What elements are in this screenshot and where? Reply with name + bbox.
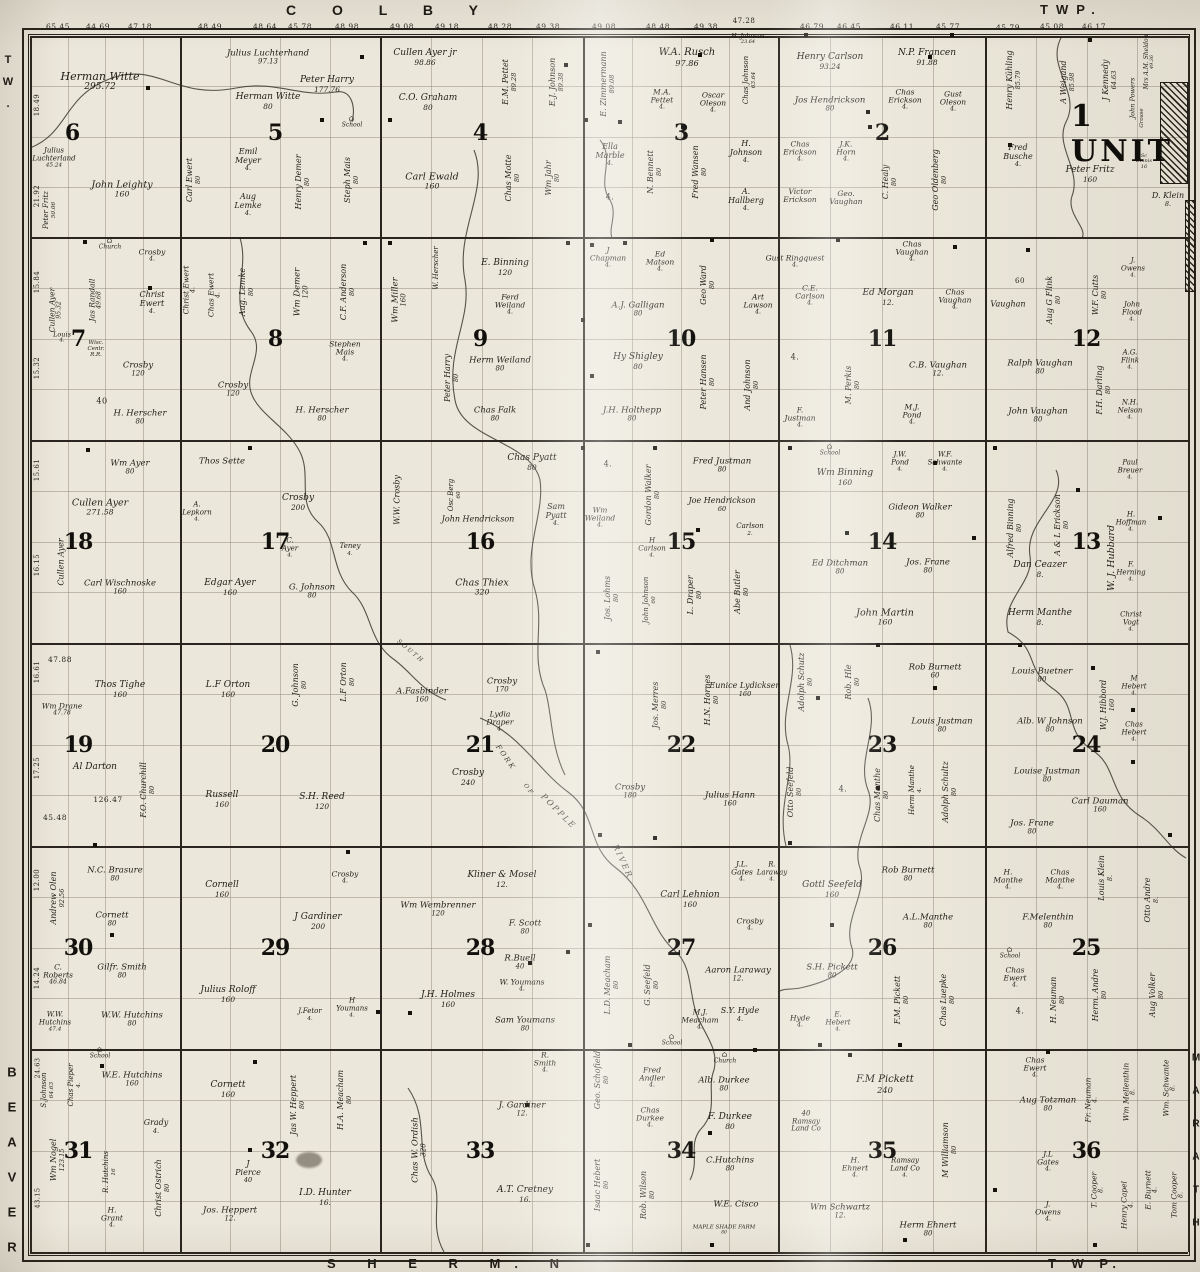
- parcel-label: Carl Dauman160: [1071, 798, 1128, 815]
- building-marker: [950, 33, 954, 37]
- parcel-label: Wm Binning160: [817, 469, 873, 487]
- parcel-label: Jos. Frane80: [906, 559, 950, 576]
- parcel-label: C.E.Carlson4.: [795, 285, 824, 308]
- parcel-label: Henry Carlson93.24: [797, 53, 864, 71]
- parcel-label: Wm Mellenthin8.: [1123, 1063, 1138, 1121]
- building-label: ⌂School: [820, 443, 840, 458]
- parcel-label: 12.00: [34, 869, 42, 892]
- parcel-label: Rob Burnett60: [909, 664, 962, 681]
- parcel-label: OscarOleson4.: [700, 92, 726, 115]
- building-marker: [83, 240, 87, 244]
- parcel-label: Cullen Ayer271.58: [72, 499, 128, 518]
- parcel-label: Jas W. Heppert80: [290, 1075, 306, 1135]
- parcel-label: E. Binning120: [481, 259, 529, 277]
- parcel-label: Wm Drane47.78: [42, 703, 83, 718]
- section-number: 16: [466, 529, 495, 555]
- parcel-label: R.Smith4.: [534, 1052, 557, 1075]
- east-letter: M: [1192, 1053, 1200, 1064]
- parcel-label: C.O. Graham80: [399, 94, 458, 112]
- section-number: 26: [868, 935, 897, 961]
- plat-map-page: C O L B Y TWP. S H E R M. N T W P. BEAVE…: [0, 0, 1200, 1272]
- east-letter: A: [1192, 1152, 1199, 1163]
- parcel-label: Herm. Andre80: [1092, 969, 1108, 1022]
- section-number: 12: [1072, 326, 1101, 352]
- parcel-label: C.Hutchins80: [706, 1157, 754, 1174]
- parcel-label: F. Durkee80: [708, 1113, 752, 1131]
- parcel-label: F.Justman4.: [784, 407, 815, 430]
- section-number: 9: [473, 326, 487, 352]
- parcel-label: L.F Orton80: [340, 662, 356, 702]
- building-marker: [248, 1148, 252, 1152]
- parcel-label: N.P. Francen91.88: [898, 49, 956, 67]
- parcel-label: Jas Randall49.68: [89, 279, 104, 322]
- parcel-label: 46.17: [1082, 23, 1106, 31]
- building-marker: [628, 1043, 632, 1047]
- parcel-label: H. Johnson23.64: [731, 34, 764, 46]
- parcel-label: A.T. Cretney16.: [497, 1186, 553, 1204]
- parcel-label: J.Owens4.: [1035, 1201, 1061, 1224]
- parcel-label: Chas Ewert4.: [208, 273, 223, 317]
- parcel-label: 16.61: [34, 661, 42, 684]
- parcel-label: C. Healy80: [882, 165, 898, 199]
- parcel-label: Wm. Schwante8.: [1163, 1060, 1178, 1117]
- section-number: 13: [1072, 529, 1101, 555]
- section-number: 29: [261, 935, 290, 961]
- section-number: 32: [261, 1138, 290, 1164]
- parcel-label: Herm Weiland80: [469, 357, 531, 374]
- parcel-label: Chas W. Ordish320: [412, 1117, 429, 1183]
- parcel-label: H. Herscher80: [113, 410, 166, 427]
- parcel-label: Gilfr. Smith80: [97, 964, 146, 981]
- parcel-label: ChasErickson4.: [888, 89, 921, 112]
- parcel-label: Aug G Flink80: [1046, 276, 1062, 324]
- parcel-label: J Kennedy64.63: [1102, 60, 1118, 101]
- parcel-label: J.H. Holthepp80: [603, 407, 661, 424]
- parcel-label: W. Youmans4.: [499, 979, 544, 994]
- parcel-label: H.Hoffman4.: [1116, 511, 1147, 532]
- parcel-label: M.J.Meacham4.: [681, 1009, 718, 1032]
- section-number: 22: [667, 732, 696, 758]
- parcel-label: J.Owens4.: [1121, 257, 1145, 278]
- parcel-label: ChasManthe4.: [1045, 869, 1074, 892]
- parcel-label: 15.32: [34, 357, 42, 380]
- building-label: ⌂Church: [714, 1051, 736, 1066]
- west-top-letter: W: [3, 76, 13, 88]
- parcel-label: Fred Justman80: [693, 458, 751, 475]
- parcel-label: N.C. Brasure80: [87, 867, 143, 884]
- parcel-label: F.Herning4.: [1116, 561, 1145, 582]
- parcel-label: 15.84: [34, 271, 42, 294]
- parcel-label: 40RamsayLand Co: [791, 1111, 821, 1134]
- building-marker: [623, 241, 627, 245]
- parcel-label: EllaMarble4.: [595, 143, 624, 167]
- parcel-label: 21.92: [34, 185, 42, 208]
- parcel-label: A.G.Flink4.: [1121, 349, 1139, 370]
- south-township-label: S H E R M. N: [220, 1256, 680, 1271]
- section-number: 33: [466, 1138, 495, 1164]
- parcel-label: N.H.Nelson4.: [1118, 399, 1143, 420]
- parcel-label: W.W. Crosby: [394, 475, 403, 525]
- parcel-label: Crosby240: [452, 769, 484, 787]
- parcel-label: HCarlson4.: [638, 537, 665, 558]
- parcel-label: Cornett160: [211, 1081, 246, 1099]
- building-marker: [598, 833, 602, 837]
- west-letter: B: [7, 1065, 16, 1080]
- parcel-label: Jos. Merres80: [652, 682, 668, 729]
- parcel-label: C.B. Vaughan12.: [909, 362, 967, 379]
- parcel-label: H. Herscher80: [295, 407, 348, 424]
- parcel-label: Jos. Frane80: [1010, 820, 1054, 837]
- parcel-label: Fr. Neuman4.: [1085, 1078, 1100, 1123]
- building-marker: [388, 118, 392, 122]
- building-marker: [1076, 488, 1080, 492]
- parcel-label: John Johnson60: [643, 577, 657, 624]
- parcel-label: Herm Manthe4.: [909, 765, 923, 815]
- parcel-label: Aaron Laraway12.: [705, 967, 771, 984]
- building-marker: [708, 1131, 712, 1135]
- parcel-label: Cornett80: [95, 912, 128, 929]
- parcel-label: Andrew Olen92.56: [50, 871, 66, 924]
- building-marker: [1168, 833, 1172, 837]
- parcel-label: J.Fetor4.: [298, 1008, 321, 1022]
- scan-smudge: [296, 1152, 322, 1168]
- building-marker: [253, 1060, 257, 1064]
- building-marker: [933, 686, 937, 690]
- parcel-label: 49.18: [435, 23, 459, 31]
- parcel-label: AugLemke4.: [234, 193, 261, 217]
- parcel-label: Russell160: [206, 791, 239, 809]
- building-marker: [408, 1011, 412, 1015]
- parcel-label: 49.08: [390, 23, 414, 31]
- building-label: ⌂School: [662, 1033, 682, 1048]
- parcel-label: Tom Cooper8.: [1171, 1172, 1186, 1218]
- parcel-label: 49.38: [694, 23, 718, 31]
- parcel-label: StephenMais4.: [329, 341, 361, 364]
- parcel-label: Thos Sette: [199, 457, 245, 466]
- parcel-label: 4.: [1016, 1008, 1025, 1017]
- west-letter: V: [8, 1170, 17, 1185]
- parcel-label: 48.28: [488, 23, 512, 31]
- parcel-label: Gottl Seefeld160: [802, 881, 862, 899]
- parcel-label: M Williamson80: [942, 1122, 958, 1177]
- parcel-label: A & L Erickson80: [1054, 494, 1070, 555]
- parcel-label: ChasErickson4.: [783, 141, 816, 164]
- parcel-label: Louis4.: [53, 332, 71, 345]
- parcel-label: W.E. Hutchins160: [102, 1072, 163, 1089]
- parcel-label: Sam Youmans80: [495, 1017, 555, 1034]
- building-marker: [972, 536, 976, 540]
- parcel-label: WmWeiland4.: [585, 507, 615, 530]
- parcel-label: 46.11: [890, 23, 914, 31]
- building-marker: [100, 1064, 104, 1068]
- building-marker: [818, 1043, 822, 1047]
- parcel-label: S.H. Pickett80: [806, 964, 857, 981]
- parcel-label: Cullen Ayer95.32: [49, 288, 64, 332]
- river-path: [778, 698, 871, 992]
- parcel-label: Chas Pieper4.: [68, 1064, 82, 1107]
- parcel-label: H. Neuman80: [1050, 977, 1066, 1023]
- parcel-label: 65.45: [46, 23, 70, 31]
- building-label: ⌂School: [342, 115, 362, 130]
- parcel-label: Thos Tighe160: [95, 681, 145, 699]
- building-marker: [876, 643, 880, 647]
- parcel-label: Louis Klein8.: [1098, 855, 1114, 900]
- parcel-label: Louis Justman80: [911, 718, 972, 735]
- building-marker: [581, 318, 585, 322]
- parcel-label: S.Johnson64.63: [41, 1072, 55, 1107]
- parcel-label: Ed Morgan12.: [862, 289, 913, 307]
- section-number: 27: [667, 935, 696, 961]
- building-marker: [836, 238, 840, 242]
- section-number: 31: [64, 1138, 93, 1164]
- parcel-label: 15.61: [34, 459, 42, 482]
- parcel-label: Ed Ditchman80: [812, 560, 868, 577]
- section-one-unit-stamp: 1 UNIT: [1071, 99, 1173, 169]
- parcel-label: W.F. Cutts80: [1092, 275, 1108, 316]
- section-number: 25: [1072, 935, 1101, 961]
- building-marker: [86, 448, 90, 452]
- parcel-label: Geo Ward80: [700, 265, 716, 305]
- building-marker: [346, 850, 350, 854]
- east-letter: T: [1193, 1185, 1199, 1196]
- parcel-label: Hyde4.: [790, 1015, 810, 1030]
- parcel-label: 49.38: [536, 23, 560, 31]
- section-number: 34: [667, 1138, 696, 1164]
- west-letter: E: [8, 1205, 17, 1220]
- parcel-label: Gideon Walker80: [888, 504, 951, 521]
- parcel-label: Herman Witte80: [236, 93, 301, 111]
- parcel-label: 4.: [791, 354, 800, 363]
- grid-line: [30, 237, 1188, 239]
- parcel-label: J Gardiner200: [294, 913, 341, 931]
- parcel-label: M. Perkis80: [845, 366, 861, 404]
- parcel-label: Geo Oldenberg80: [932, 149, 948, 210]
- parcel-label: E.M. Pettet89.28: [502, 59, 518, 105]
- section-number: 2: [875, 120, 889, 146]
- parcel-label: 45.79: [996, 24, 1020, 32]
- parcel-label: 43.15: [34, 1187, 41, 1208]
- parcel-label: J.K.Horn4.: [836, 141, 855, 164]
- parcel-label: Henry Capel4.: [1121, 1181, 1136, 1229]
- parcel-label: Fred Wansen80: [692, 145, 708, 198]
- parcel-label: Geo. Schofield80: [594, 1051, 610, 1110]
- parcel-label: H.Grant4.: [101, 1207, 123, 1230]
- west-letter: R: [7, 1240, 16, 1255]
- parcel-label: 60: [1015, 278, 1025, 286]
- parcel-label: 14.24: [34, 967, 42, 990]
- section-number: 28: [466, 935, 495, 961]
- parcel-label: ChasEwert4.: [1004, 967, 1027, 990]
- east-letter: R: [1192, 1119, 1199, 1130]
- parcel-label: ArtLawson4.: [743, 294, 772, 317]
- parcel-label: Gust Ringquest4.: [766, 255, 825, 270]
- parcel-label: Aug. Lemke80: [239, 268, 255, 316]
- parcel-label: E.Hebert4.: [825, 1011, 850, 1032]
- parcel-label: Carl Lehnion160: [660, 891, 719, 909]
- parcel-label: 48.49: [198, 23, 222, 31]
- parcel-label: G. Johnson80: [292, 663, 308, 707]
- parcel-label: Crosby120: [123, 362, 153, 379]
- parcel-label: ChasDurkee4.: [636, 1107, 664, 1130]
- parcel-label: 46.79: [800, 23, 824, 31]
- building-marker: [788, 841, 792, 845]
- parcel-label: N. Bennett80: [647, 150, 663, 194]
- parcel-label: Wm Ayer80: [110, 460, 149, 477]
- parcel-label: Aug Totzman80: [1020, 1097, 1076, 1114]
- section-number: 14: [868, 529, 897, 555]
- grid-line: [30, 36, 1188, 38]
- grid-line: [30, 643, 1188, 645]
- parcel-label: L.D. Meacham80: [604, 956, 620, 1015]
- parcel-label: Jos. Lohms80: [604, 576, 620, 620]
- parcel-label: A.L.Manthe80: [903, 914, 953, 931]
- parcel-label: 4.: [839, 786, 848, 795]
- building-marker: [1093, 1243, 1097, 1247]
- building-marker: [804, 33, 808, 37]
- parcel-label: MAPLE SHADE FARM80: [693, 1226, 756, 1237]
- parcel-label: FredAndler4.: [639, 1067, 664, 1090]
- section-number: 10: [667, 326, 696, 352]
- parcel-label: Rob. Hle80: [845, 664, 861, 699]
- parcel-label: Alfred Binning80: [1007, 498, 1023, 557]
- parcel-label: 45.78: [288, 23, 312, 31]
- parcel-label: Julius Luchterhand97.13: [227, 50, 309, 67]
- parcel-label: MHebert4.: [1121, 675, 1146, 696]
- section-number: 5: [268, 120, 282, 146]
- building-marker: [146, 86, 150, 90]
- section-number: 18: [64, 529, 93, 555]
- parcel-label: W. Herscher: [433, 246, 441, 290]
- section-number: 4: [473, 120, 487, 146]
- parcel-label: W.E. Cisco: [713, 1200, 758, 1209]
- parcel-label: J.LGates4.: [1037, 1151, 1059, 1174]
- building-label: ⌂School: [90, 1046, 110, 1061]
- parcel-label: JuliusLuchterland45.24: [32, 147, 75, 168]
- parcel-label: And Johnson80: [744, 360, 760, 411]
- parcel-label: C.Roberts46.84: [43, 964, 73, 987]
- parcel-label: A.J. Galligan80: [612, 302, 665, 319]
- parcel-label: SamPyatt4.: [545, 503, 566, 527]
- parcel-label: Al Darton: [73, 763, 117, 773]
- parcel-label: L.F Orton160: [206, 681, 250, 699]
- building-marker: [1018, 643, 1022, 647]
- parcel-label: A Weigand85.98: [1060, 60, 1076, 103]
- parcel-label: Peter Fritz50.06: [43, 191, 57, 229]
- parcel-label: EmilMeyer4.: [235, 148, 261, 172]
- parcel-label: Gordon Walker80: [645, 465, 661, 526]
- parcel-label: W.A. Rusch97.86: [659, 48, 715, 68]
- building-marker: [1158, 516, 1162, 520]
- parcel-label: Teney4.: [340, 543, 361, 557]
- parcel-label: C.F. Anderson80: [340, 264, 356, 320]
- parcel-label: 126.47: [93, 796, 122, 804]
- parcel-label: F. Scott80: [509, 920, 542, 937]
- parcel-label: Crosby200: [282, 494, 314, 512]
- building-marker: [588, 923, 592, 927]
- west-letter: A: [7, 1135, 16, 1150]
- section-number: 7: [71, 326, 85, 352]
- parcel-label: Carlson2.: [736, 523, 763, 537]
- parcel-label: S.Y. Hyde4.: [721, 1007, 759, 1023]
- parcel-label: J. Gardiner12.: [499, 1102, 546, 1119]
- section-number: 17: [261, 529, 290, 555]
- parcel-label: D. Klein8.: [1152, 192, 1184, 208]
- parcel-label: W.F.Schwante4.: [928, 451, 963, 472]
- parcel-label: Julius Hann160: [705, 792, 755, 809]
- section-number: 30: [64, 935, 93, 961]
- parcel-label: Crosby4.: [737, 918, 764, 933]
- parcel-label: Carl Ewald160: [405, 173, 458, 192]
- east-letter: H: [1192, 1218, 1199, 1229]
- parcel-label: John Martin160: [856, 609, 914, 628]
- parcel-label: Aug Volker80: [1149, 973, 1165, 1017]
- parcel-label: F.M. Pickett80: [894, 976, 910, 1025]
- parcel-label: 45.08: [1040, 23, 1064, 31]
- grid-line: [30, 1252, 1188, 1254]
- parcel-label: T. Cooper8.: [1091, 1172, 1106, 1208]
- parcel-label: Crosby120: [218, 382, 248, 399]
- building-marker: [1131, 708, 1135, 712]
- parcel-label: JChapman4.: [590, 247, 626, 270]
- parcel-label: J.W.Pond4.: [891, 451, 909, 472]
- north-township-label: C O L B Y: [180, 2, 600, 18]
- building-marker: [584, 118, 588, 122]
- parcel-label: 46.45: [837, 23, 861, 31]
- parcel-label: Eunice Lydicksen160: [709, 682, 780, 698]
- parcel-label: H.Manthe4.: [993, 869, 1022, 892]
- building-marker: [1131, 760, 1135, 764]
- parcel-label: John Vaughan80: [1008, 408, 1068, 425]
- parcel-label: Peter Hansen80: [700, 355, 716, 410]
- parcel-label: 40: [96, 398, 107, 407]
- parcel-label: HYoumans4.: [336, 997, 368, 1018]
- building-marker: [566, 950, 570, 954]
- building-marker: [376, 1010, 380, 1014]
- building-marker: [248, 446, 252, 450]
- section-number: 35: [868, 1138, 897, 1164]
- parcel-label: JohnFlood4.: [1122, 301, 1142, 322]
- building-marker: [848, 1053, 852, 1057]
- building-marker: [653, 446, 657, 450]
- west-top-letter: T: [5, 54, 12, 66]
- parcel-label: M.A.Pettet4.: [651, 89, 674, 112]
- parcel-label: W.J. Hibbord160: [1100, 680, 1116, 731]
- parcel-label: J.L.Gates4.: [731, 861, 753, 884]
- parcel-label: GustOleson4.: [940, 91, 966, 114]
- building-marker: [320, 118, 324, 122]
- parcel-label: Osc Berg60: [448, 479, 462, 512]
- building-marker: [1091, 666, 1095, 670]
- building-marker: [1046, 1050, 1050, 1054]
- hatched-plat: [1185, 200, 1195, 292]
- building-marker: [830, 923, 834, 927]
- building-marker: [586, 1243, 590, 1247]
- parcel-label: G. Johnson80: [289, 584, 335, 601]
- grid-line: [30, 846, 1188, 848]
- building-marker: [581, 446, 585, 450]
- parcel-label: John Leighty160: [91, 181, 152, 200]
- parcel-label: J.H. Holmes160: [421, 991, 475, 1009]
- parcel-label: Ralph Vaughan80: [1007, 360, 1072, 377]
- parcel-label: Crosby170: [487, 678, 517, 695]
- building-marker: [710, 238, 714, 242]
- east-letter: A: [1192, 1086, 1199, 1097]
- parcel-label: Herm Ehnert80: [900, 1222, 957, 1239]
- building-marker: [388, 241, 392, 245]
- parcel-label: PaulBreuer4.: [1118, 459, 1143, 480]
- parcel-label: Adolph Schutz80: [798, 653, 814, 712]
- parcel-label: FerdWeiland4.: [495, 294, 525, 317]
